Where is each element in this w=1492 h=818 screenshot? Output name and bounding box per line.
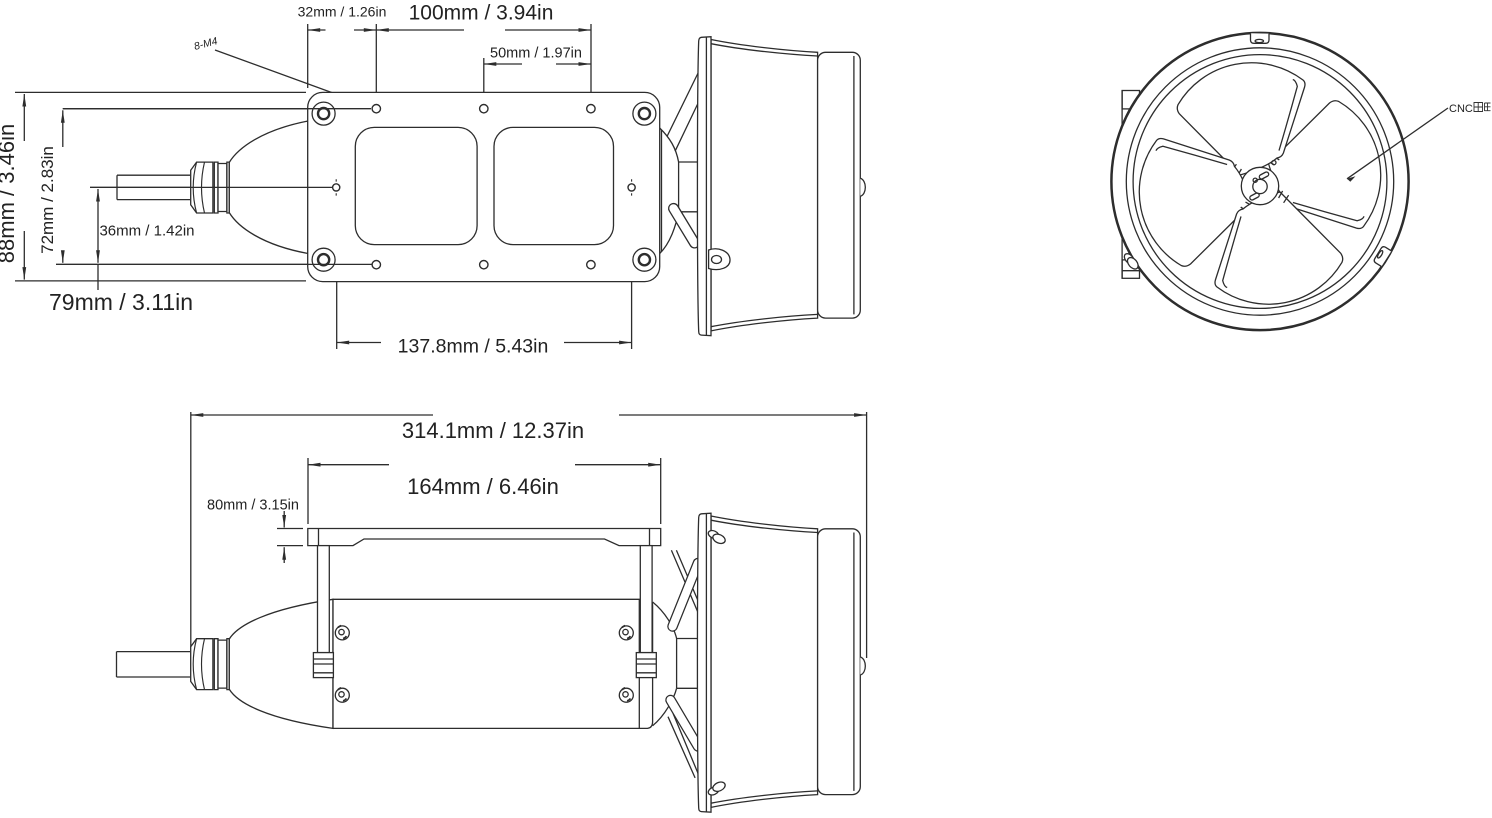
svg-text:137.8mm / 5.43in: 137.8mm / 5.43in (398, 336, 549, 358)
svg-text:314.1mm / 12.37in: 314.1mm / 12.37in (402, 418, 584, 443)
svg-text:164mm / 6.46in: 164mm / 6.46in (407, 474, 559, 499)
svg-text:79mm / 3.11in: 79mm / 3.11in (49, 289, 193, 315)
svg-text:88mm / 3.46in: 88mm / 3.46in (0, 124, 19, 263)
svg-text:80mm / 3.15in: 80mm / 3.15in (207, 498, 299, 514)
svg-text:100mm / 3.94in: 100mm / 3.94in (409, 2, 554, 25)
svg-text:32mm / 1.26in: 32mm / 1.26in (298, 4, 387, 20)
svg-text:72mm / 2.83in: 72mm / 2.83in (38, 146, 57, 254)
svg-text:36mm / 1.42in: 36mm / 1.42in (99, 223, 194, 240)
svg-text:CNC: CNC (1449, 103, 1473, 115)
svg-text:50mm / 1.97in: 50mm / 1.97in (490, 46, 582, 62)
